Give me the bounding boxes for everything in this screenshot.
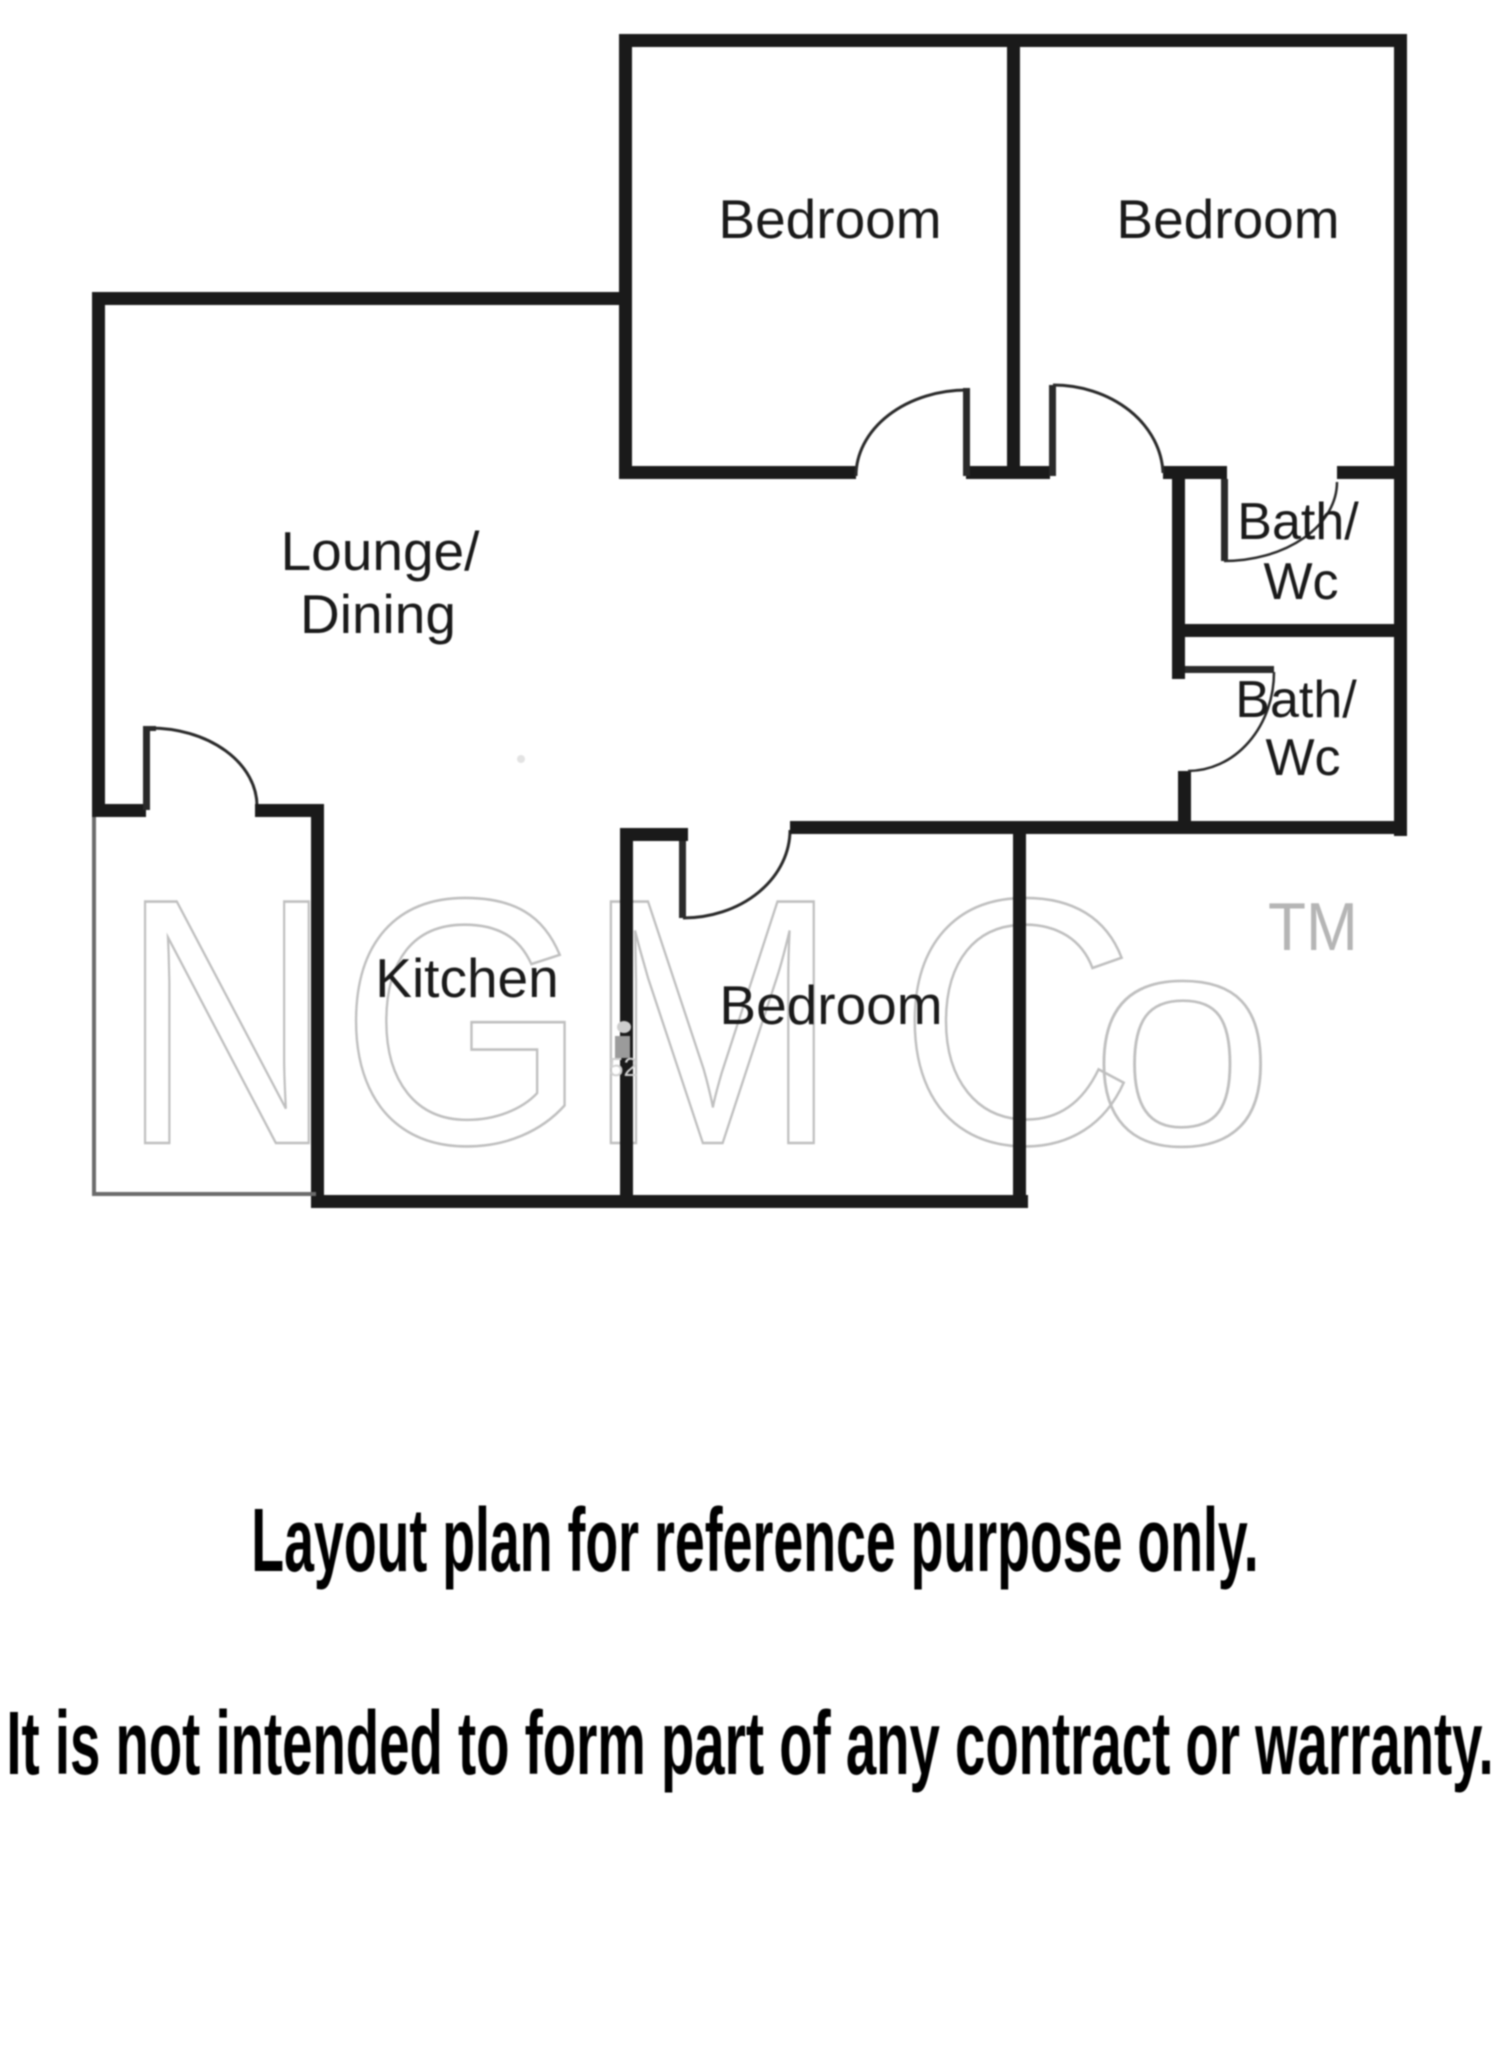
- svg-text:TM: TM: [1268, 888, 1358, 964]
- svg-text:Layout plan for reference purp: Layout plan for reference purpose only.: [251, 1490, 1258, 1591]
- svg-text:It is not intended to form par: It is not intended to form part of any c…: [6, 1693, 1493, 1793]
- svg-text:N: N: [121, 825, 333, 1218]
- svg-text:52: 52: [609, 1052, 638, 1082]
- svg-text:Bedroom: Bedroom: [719, 974, 942, 1036]
- svg-text:Bath/: Bath/: [1237, 493, 1359, 551]
- svg-text:o: o: [1090, 870, 1275, 1209]
- svg-text:Lounge/: Lounge/: [281, 520, 481, 582]
- svg-text:Bedroom: Bedroom: [1116, 188, 1339, 250]
- svg-text:Wc: Wc: [1265, 729, 1340, 787]
- svg-text:Kitchen: Kitchen: [375, 947, 558, 1009]
- svg-text:Wc: Wc: [1263, 553, 1338, 611]
- svg-text:G: G: [340, 826, 588, 1218]
- svg-text:Bath/: Bath/: [1235, 671, 1357, 729]
- svg-text:Dining: Dining: [300, 583, 456, 645]
- svg-text:Bedroom: Bedroom: [718, 188, 941, 250]
